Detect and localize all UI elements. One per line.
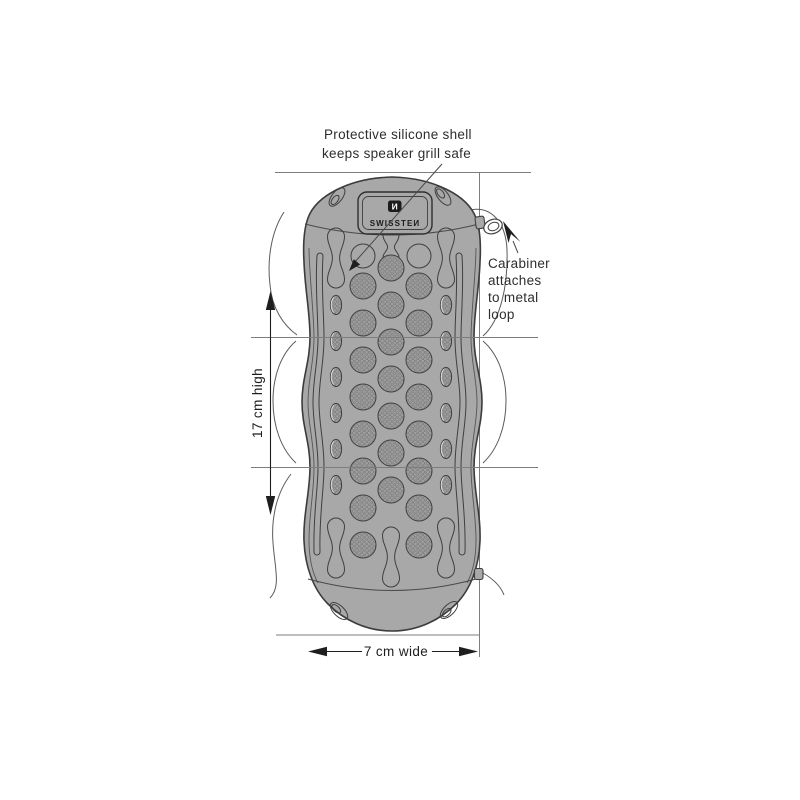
speaker-diagram-canvas: И SWISSTEИ 17 cm high 7 cm wide Protecti…	[0, 0, 800, 800]
carabiner-note-line1: Carabiner	[488, 256, 550, 271]
arrow-up-icon	[266, 291, 275, 310]
arrow-right-icon	[459, 647, 478, 656]
carabiner-note-line2: attaches	[488, 273, 541, 288]
carabiner-annotation: Carabiner attaches to metal loop	[488, 221, 550, 322]
arrow-left-icon	[308, 647, 327, 656]
brand-text: SWISSTEИ	[370, 219, 421, 228]
shell-note-line1: Protective silicone shell	[324, 127, 472, 142]
speaker-body: И SWISSTEИ	[302, 177, 504, 631]
width-dimension-label: 7 cm wide	[364, 644, 428, 659]
height-dimension-label: 17 cm high	[250, 368, 265, 438]
height-dimension: 17 cm high	[250, 291, 275, 515]
swissten-badge: И SWISSTEИ	[358, 192, 432, 234]
brand-logo-glyph: И	[392, 201, 398, 211]
shell-note-line2: keeps speaker grill safe	[322, 146, 471, 161]
carabiner-note-line4: loop	[488, 307, 515, 322]
carabiner-note-line3: to metal	[488, 290, 538, 305]
bottom-tab	[475, 569, 484, 580]
product-diagram: И SWISSTEИ 17 cm high 7 cm wide Protecti…	[0, 0, 800, 800]
width-dimension: 7 cm wide	[308, 644, 478, 659]
arrow-down-icon	[266, 496, 275, 515]
